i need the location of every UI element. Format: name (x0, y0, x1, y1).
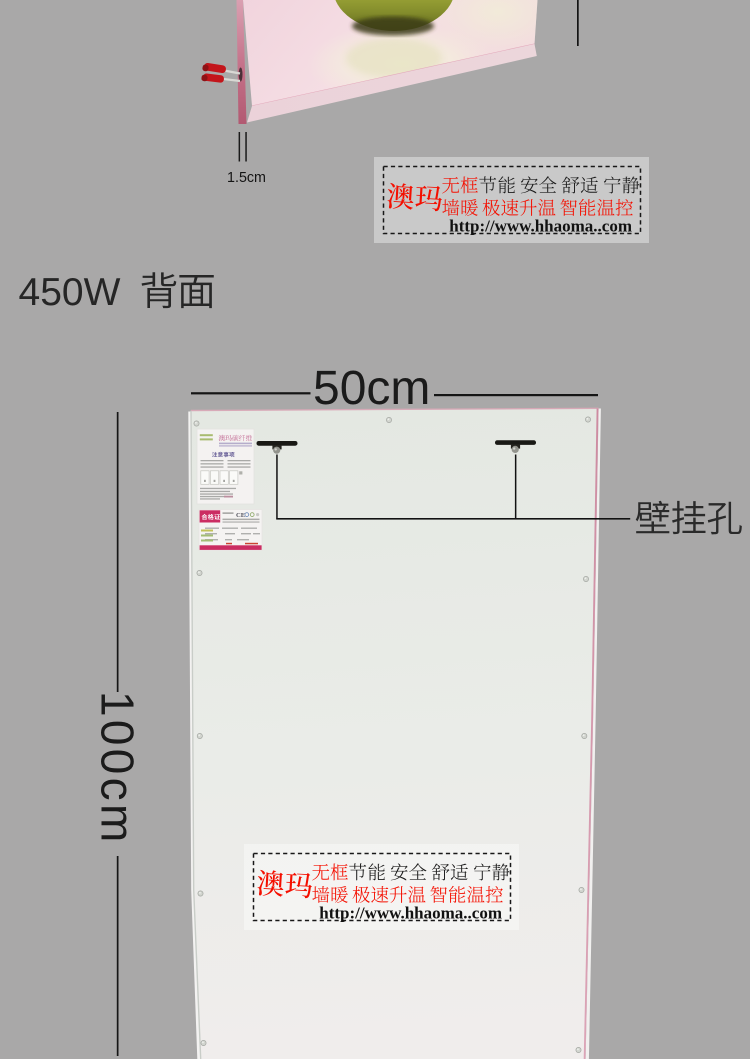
svg-text:100cm: 100cm (92, 691, 144, 846)
svg-text:50cm: 50cm (313, 362, 430, 415)
svg-text:http://www.hhaoma..com: http://www.hhaoma..com (449, 217, 632, 236)
svg-text:450W: 450W (19, 271, 121, 314)
svg-text:CE: CE (236, 512, 246, 519)
svg-text:1.5cm: 1.5cm (227, 170, 266, 186)
